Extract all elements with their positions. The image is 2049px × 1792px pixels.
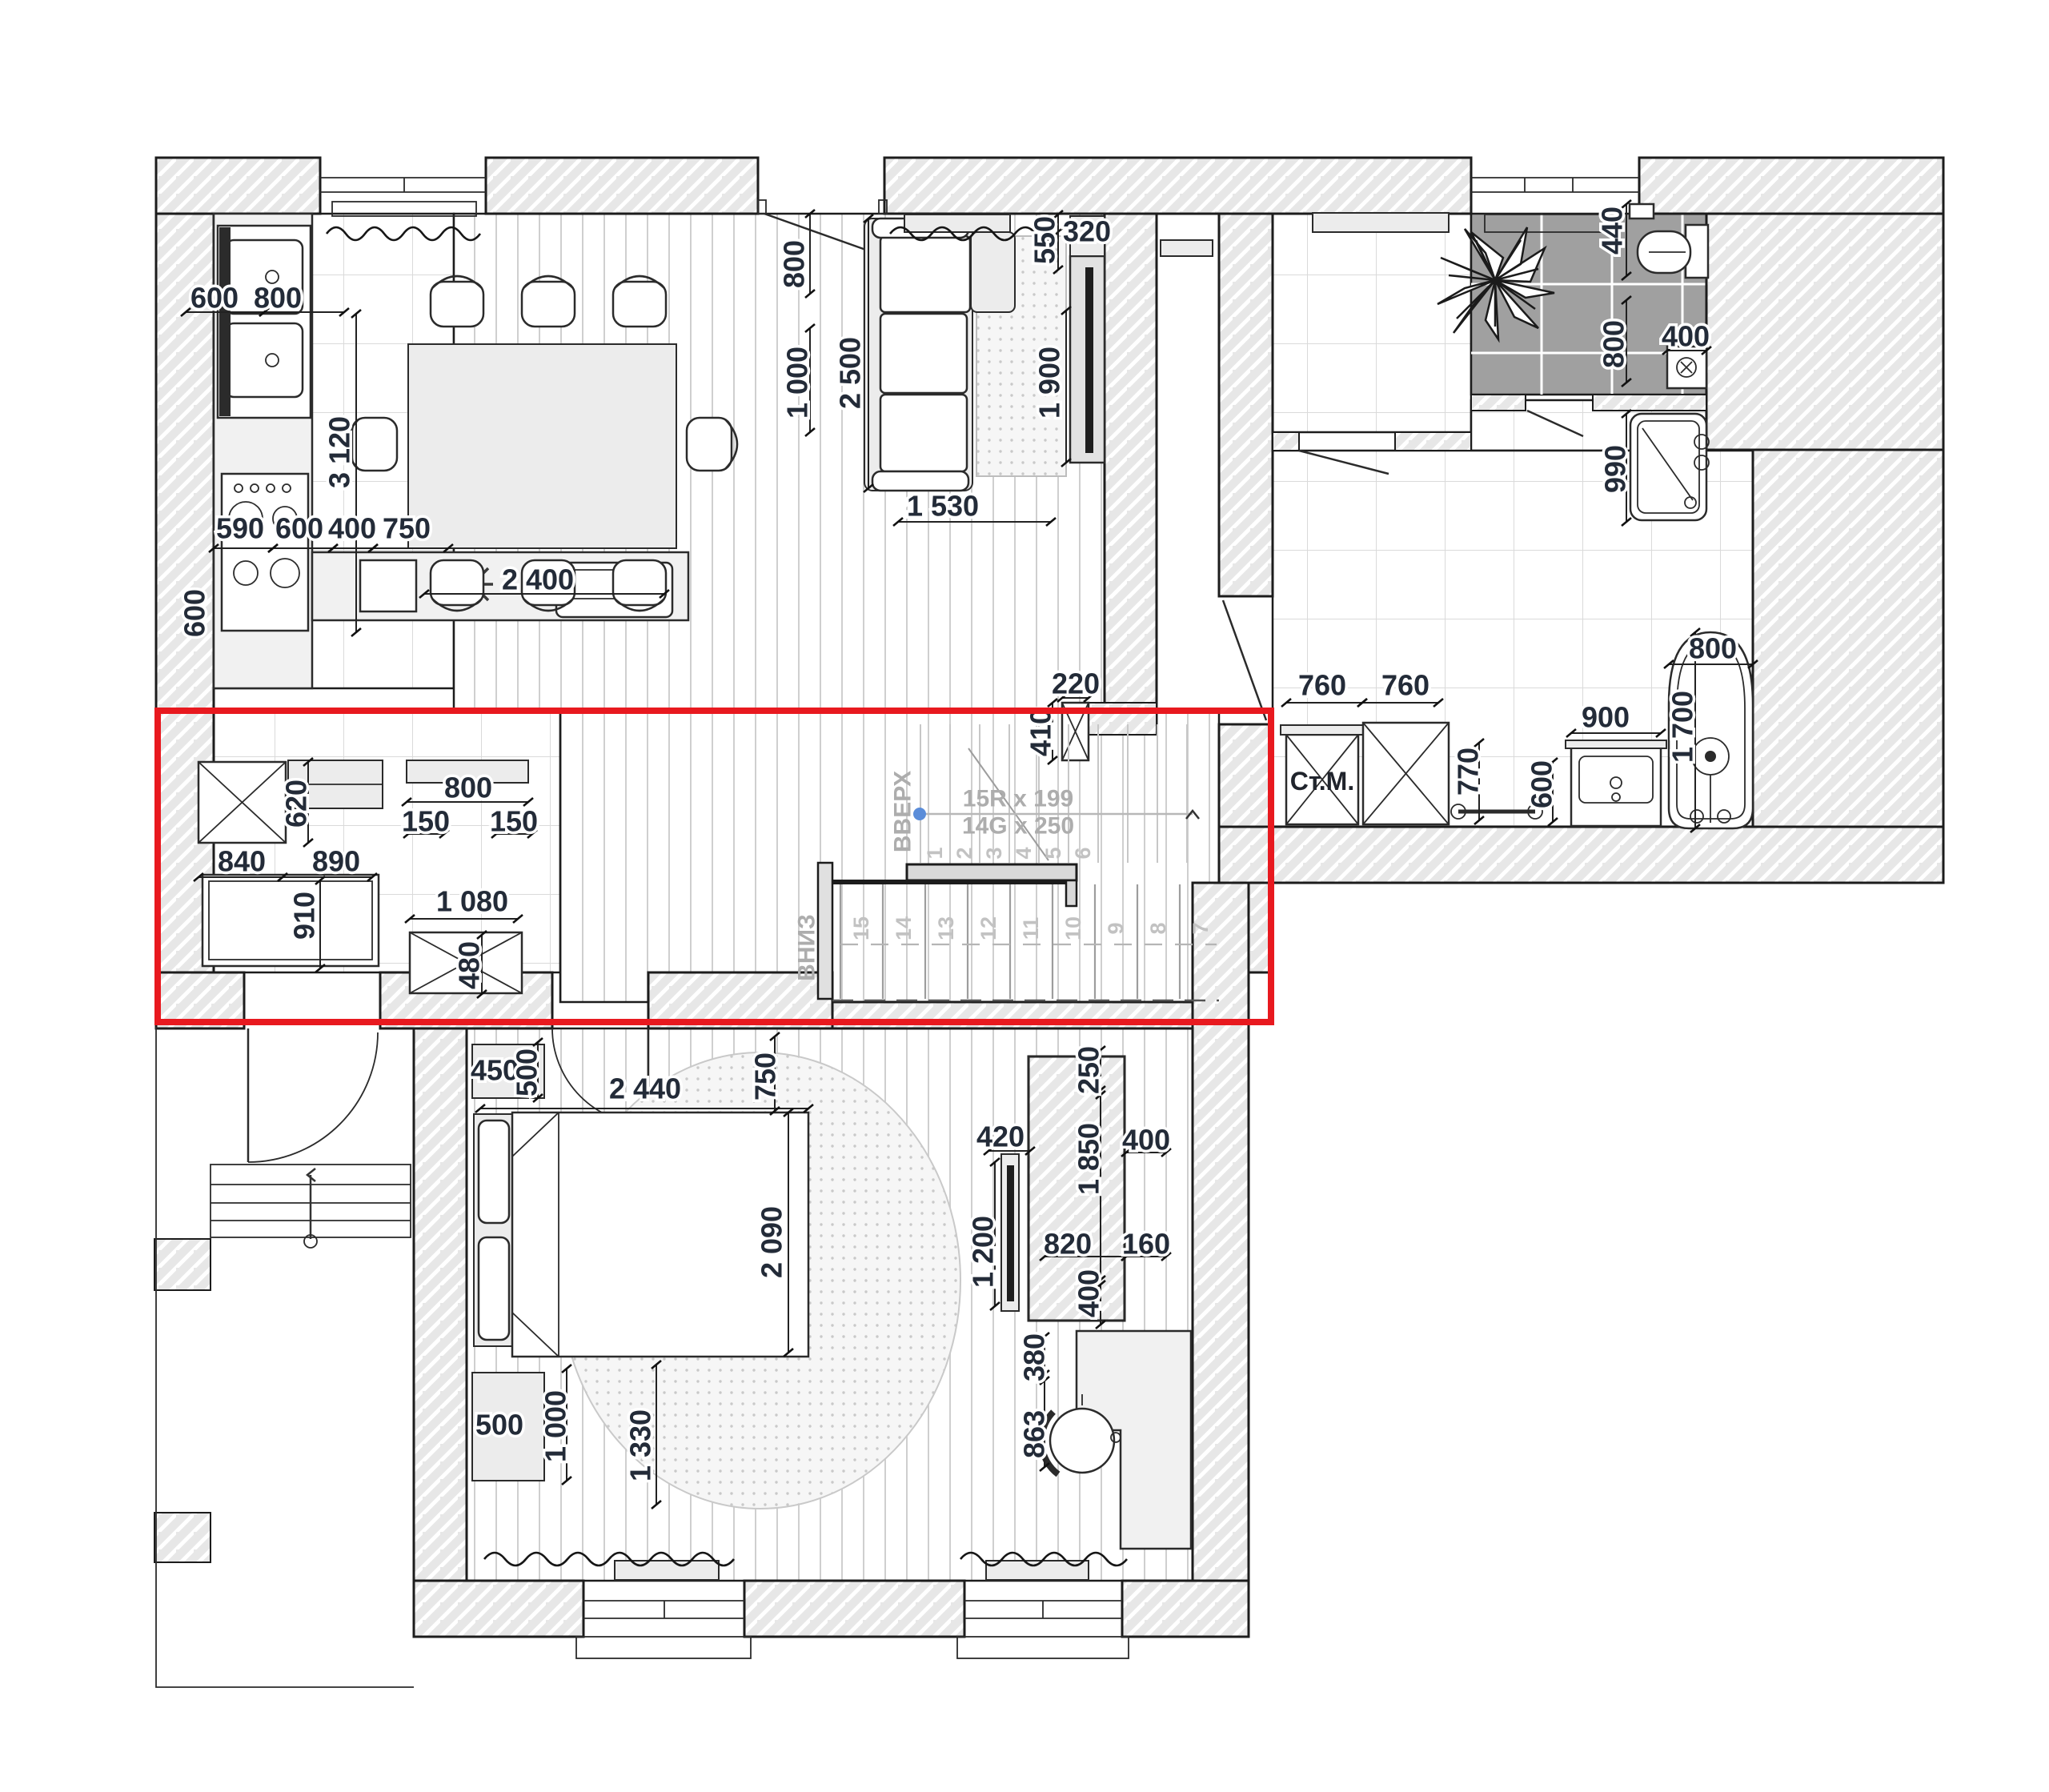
dim-bed-1330: 1 330 (624, 1409, 657, 1481)
dim-nightstand-500: 500 (511, 1048, 543, 1096)
porch-column-bottom (154, 1513, 211, 1562)
wall-laundry-bottom (1219, 827, 1943, 883)
dim-laundry-760a: 760 (1298, 669, 1346, 702)
bathroom-vent-box (1630, 204, 1654, 218)
dim-wardrobe-400a: 400 (1122, 1124, 1170, 1157)
dim-desk-160: 160 (1122, 1228, 1170, 1261)
dim-sofa-2500: 2 500 (834, 337, 867, 409)
dim-hall-150a: 150 (402, 805, 450, 838)
wall-top-1 (156, 158, 320, 214)
dim-counter-600: 600 (275, 512, 323, 545)
dim-tub-800: 800 (1689, 632, 1737, 665)
dim-hall-840: 840 (218, 845, 266, 878)
dim-tv2-1200: 1 200 (967, 1216, 1000, 1288)
dim-desk-820: 820 (1044, 1228, 1092, 1261)
step-number: 9 (1104, 922, 1128, 934)
dim-living-1000: 1 000 (781, 347, 814, 419)
toilet (1638, 225, 1708, 278)
stairs-down-label: ВНИЗ (794, 914, 820, 981)
dim-tub-1700: 1 700 (1666, 691, 1699, 763)
dim-table-2400: 2 400 (502, 563, 574, 596)
dim-laundry-760b: 760 (1381, 669, 1429, 702)
bedroom-tv (1001, 1154, 1019, 1311)
stairs-riser-note: 15R x 199 (963, 786, 1073, 812)
step-number: 1 (923, 847, 947, 859)
dim-wc-440: 440 (1596, 206, 1629, 255)
step-number: 13 (934, 916, 958, 940)
wall-living-right (1105, 214, 1157, 724)
dim-hall-1080: 1 080 (436, 885, 508, 918)
dim-bed-2090: 2 090 (756, 1206, 788, 1278)
stair-landing-rail (907, 864, 1077, 880)
wall-bedroom-bottom-3 (1122, 1581, 1249, 1637)
dim-desk-863: 863 (1018, 1410, 1051, 1458)
step-number: 5 (1041, 847, 1065, 859)
step-number: 7 (1189, 922, 1213, 934)
dim-hall-620: 620 (280, 780, 313, 828)
dim-hall-800: 800 (444, 772, 492, 804)
dim-sofa-1530: 1 530 (907, 490, 979, 523)
dim-counter-590: 590 (216, 512, 264, 545)
dim-kitchen-800: 800 (254, 282, 302, 315)
dim-wc-sink-400: 400 (1662, 320, 1710, 353)
stove (222, 474, 308, 631)
vanity-sink (1566, 740, 1666, 826)
step-number: 2 (952, 847, 976, 859)
dim-laundry-600: 600 (1526, 760, 1558, 808)
step-number: 3 (982, 847, 1006, 859)
dim-hall-480: 480 (453, 941, 486, 989)
dim-counter-750: 750 (383, 512, 431, 545)
dim-shelf-320: 320 (1063, 215, 1111, 248)
wall-bath-partition-right (1593, 395, 1706, 411)
vestibule-tile-floor (1273, 214, 1471, 432)
dim-wardrobe-250: 250 (1073, 1046, 1105, 1094)
dim-wc-800: 800 (1598, 320, 1630, 368)
dim-hall-890: 890 (312, 845, 360, 878)
dim-laundry-770: 770 (1452, 748, 1485, 796)
stair-side-wall (818, 863, 832, 999)
dim-kitchen-600: 600 (190, 282, 239, 315)
dim-counter-400: 400 (328, 512, 376, 545)
kitchen-appliance (360, 560, 416, 611)
wall-bath-partition-left (1471, 395, 1526, 411)
stair-rail-return (1066, 880, 1077, 906)
dim-living-800: 800 (778, 240, 811, 288)
laundry-cabinet (1363, 723, 1449, 824)
hall-wardrobe (198, 762, 286, 843)
floor-plan-page: 6008003 1202 4005906004007506008001 0002… (0, 0, 2049, 1792)
kitchen-sink (218, 226, 311, 418)
wall-hung-sink (1667, 347, 1706, 388)
stair-hall-plank-floor (560, 711, 1219, 1002)
dim-nightstand2-1000: 1 000 (539, 1390, 572, 1462)
wall-bedroom-right (1193, 883, 1249, 1637)
dim-tv2-420: 420 (976, 1121, 1024, 1153)
wall-top-2 (486, 158, 758, 214)
dim-tv-1900: 1 900 (1033, 347, 1066, 419)
step-number: 4 (1012, 847, 1036, 859)
dim-desk-400: 400 (1073, 1269, 1105, 1317)
vestibule-shelf (1313, 213, 1449, 232)
wall-right-lower (1753, 450, 1943, 827)
step-number: 15 (849, 916, 873, 940)
living-radiator (904, 214, 1010, 232)
dim-vanity-900: 900 (1582, 701, 1630, 734)
dim-shower-990: 990 (1599, 445, 1632, 493)
dim-nightstand2-500: 500 (475, 1409, 523, 1441)
dim-living-550: 550 (1029, 216, 1061, 264)
dim-kitchen-3120: 3 120 (323, 416, 356, 488)
dim-hall-910: 910 (288, 892, 321, 940)
step-number: 10 (1061, 916, 1085, 940)
floor-plan-drawing: 6008003 1202 4005906004007506008001 0002… (0, 0, 2049, 1792)
wall-vestibule-stub-left (1273, 432, 1299, 451)
wall-corridor-left-upper (1219, 214, 1273, 596)
washing-machine-label: Ст.М. (1290, 767, 1354, 796)
wall-bedroom-bottom-1 (414, 1581, 583, 1637)
wall-bedroom-left (414, 1028, 467, 1637)
wall-top-3 (884, 158, 1471, 214)
wall-top-4 (1639, 158, 1943, 214)
wall-vestibule-stub-right (1395, 432, 1471, 451)
step-number: 12 (976, 916, 1000, 940)
dim-counter-depth-600: 600 (178, 589, 211, 637)
niche-sill (1161, 240, 1213, 256)
dim-hall-150b: 150 (490, 805, 538, 838)
shower (1630, 414, 1709, 520)
dim-bed-2440: 2 440 (609, 1072, 681, 1105)
wall-right-mass (1706, 214, 1943, 450)
porch-column-top (154, 1239, 211, 1290)
dim-column-410: 410 (1024, 708, 1057, 756)
step-number: 6 (1071, 847, 1095, 859)
step-number: 11 (1019, 917, 1043, 940)
dining-table (408, 344, 676, 548)
dim-wardrobe-1850: 1 850 (1073, 1123, 1105, 1195)
dim-column-220: 220 (1052, 667, 1100, 700)
stairs-going-note: 14G x 250 (962, 813, 1074, 840)
dim-desk-380: 380 (1018, 1333, 1051, 1381)
stairs-up-label: ВВЕРХ (890, 771, 916, 852)
tv-wall-panel (1070, 216, 1105, 463)
step-number: 8 (1146, 922, 1170, 934)
dim-bed-750: 750 (749, 1052, 782, 1100)
step-number: 14 (892, 916, 916, 940)
bedroom-radiator-left (615, 1561, 719, 1580)
wall-bedroom-bottom-2 (744, 1581, 964, 1637)
